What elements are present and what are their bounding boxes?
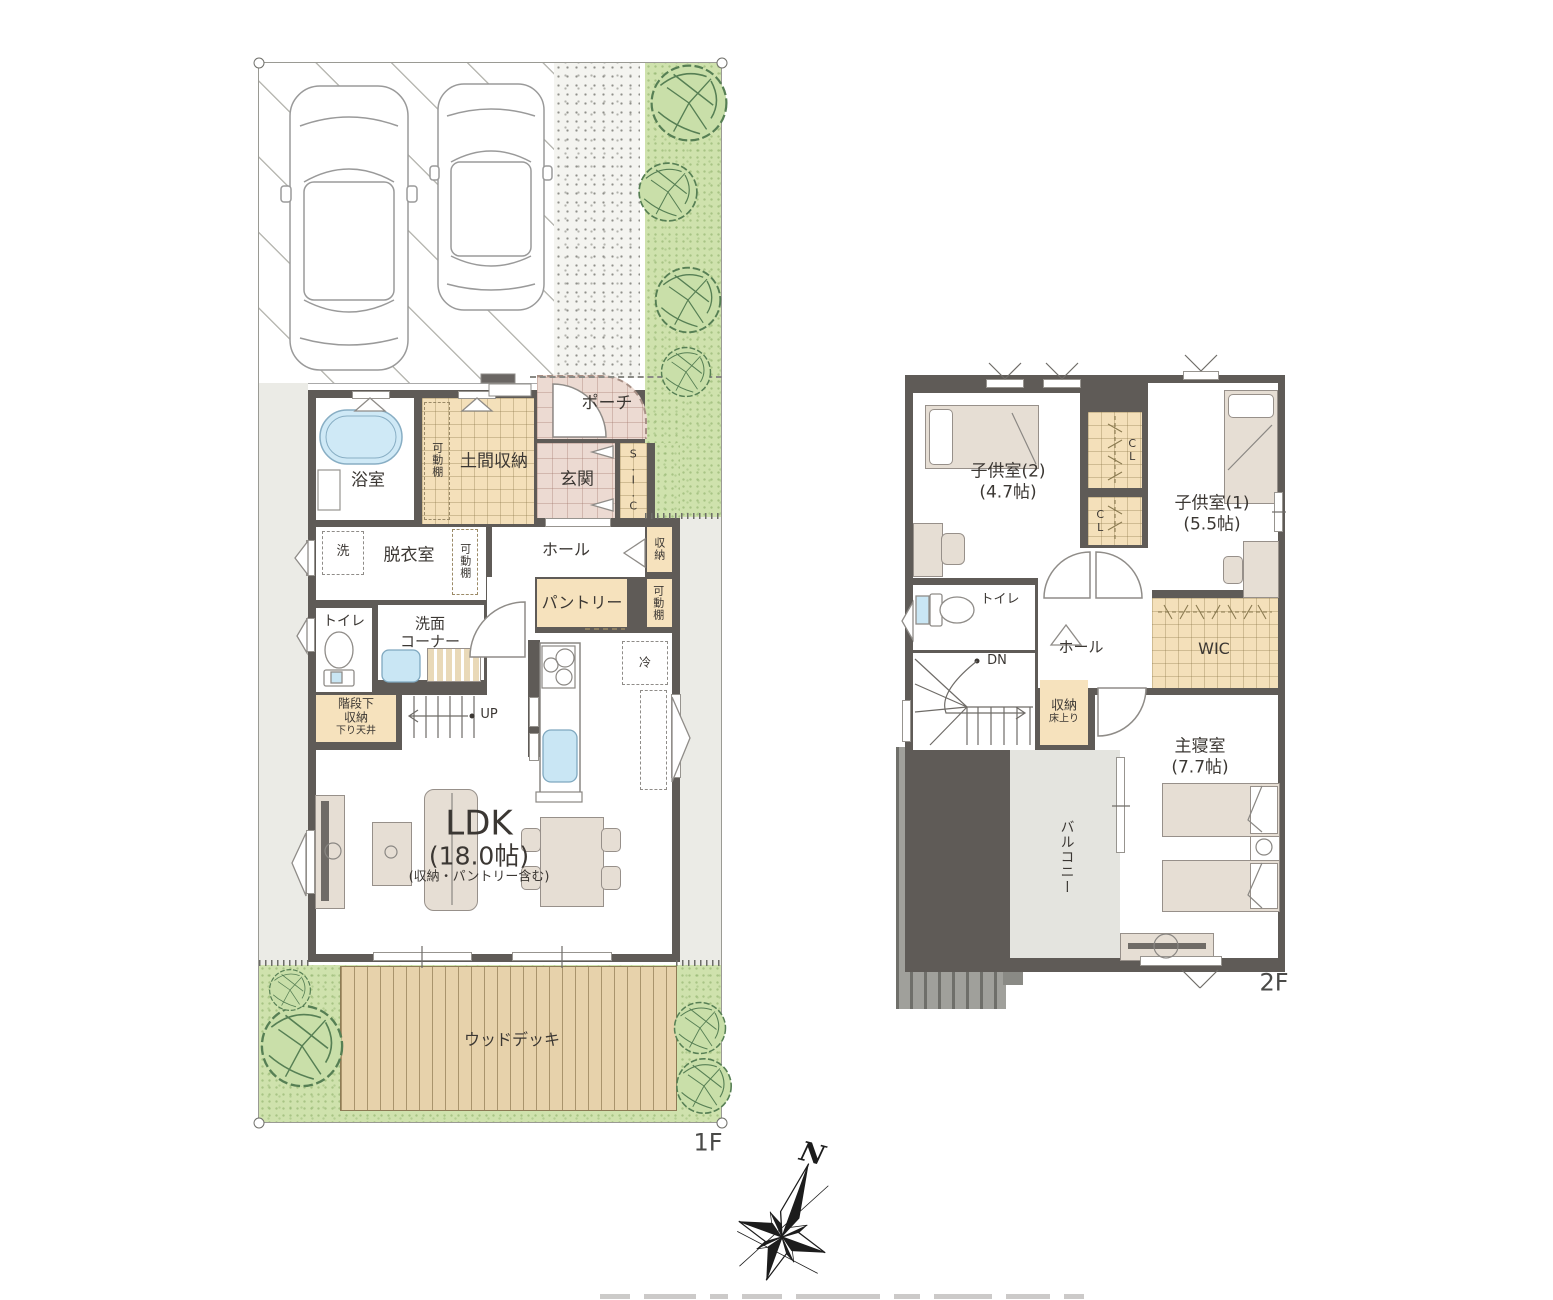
label-ldk-note: (収納・パントリー含む) [409, 870, 550, 884]
label-balcony: バルコニー [1057, 820, 1074, 895]
plan-vector-overlay [0, 0, 1553, 1300]
cropped-caption-remnant [600, 1294, 1084, 1299]
label-under-stair-storage: 階段下 収納 下り天井 [336, 697, 376, 736]
dining-chair [601, 866, 621, 890]
site-corner-marker [717, 1118, 728, 1129]
label-child2: 子供室(2) (4.7帖) [970, 461, 1045, 502]
window [1140, 956, 1222, 966]
label-washer: 洗 [336, 544, 349, 560]
room-bathroom [316, 398, 414, 520]
compass-rose-icon [723, 1148, 852, 1296]
label-hall-2f: ホール [1058, 638, 1103, 656]
label-master-name: 主寝室 [1171, 736, 1228, 757]
window [529, 697, 539, 727]
label-toilet-2f: トイレ [980, 592, 1019, 608]
label-dn: DN [987, 653, 1007, 669]
window-sliding [512, 952, 612, 961]
label-storage2f-note: 床上り [1049, 714, 1079, 725]
dining-chair [601, 828, 621, 852]
window [529, 733, 539, 761]
label-pantry: パントリー [542, 593, 623, 613]
label-child1-size: (5.5帖) [1174, 514, 1249, 535]
label-1f: 1F [693, 1128, 722, 1157]
lawn-notch [645, 390, 680, 443]
label-uss-1: 階段下 [336, 697, 376, 711]
fence-east [645, 513, 722, 519]
chair [941, 533, 965, 565]
desk [913, 523, 943, 577]
fence-southwest [259, 960, 311, 966]
genkan-step [545, 518, 611, 527]
window [1274, 492, 1283, 532]
site-corner-marker [254, 58, 265, 69]
label-master-size: (7.7帖) [1171, 757, 1228, 778]
dining-table [540, 817, 604, 907]
window [306, 540, 315, 576]
nightstand [1250, 836, 1280, 861]
cupboard-space [640, 690, 667, 790]
window [306, 618, 315, 652]
label-senmen-line2: コーナー [400, 633, 460, 651]
label-fridge: 冷 [639, 656, 651, 671]
label-sic: S.I.C [626, 448, 639, 513]
window [671, 694, 681, 778]
tv-board [315, 795, 345, 909]
label-hall-1f: ホール [542, 540, 590, 560]
label-child2-size: (4.7帖) [970, 482, 1045, 503]
label-movable-shelf: 可動棚 [458, 543, 471, 579]
label-ldk: LDK (18.0帖) (収納・パントリー含む) [409, 805, 550, 884]
label-child1: 子供室(1) (5.5帖) [1174, 493, 1249, 534]
window [352, 391, 390, 399]
window-sliding [373, 952, 472, 961]
stairs-1f [402, 695, 487, 740]
pillow [1228, 394, 1274, 418]
label-storage-1f: 収納 [652, 537, 665, 561]
window [458, 391, 496, 399]
balcony-door [1116, 757, 1125, 853]
desk [1243, 541, 1279, 598]
floor-plan-canvas: 浴室 可動棚 土間収納 ポーチ 玄関 S.I.C 洗 脱衣室 可動棚 ホール 収… [0, 0, 1553, 1300]
window [1043, 379, 1081, 388]
room-hall-2f [1038, 548, 1152, 688]
label-movable-shelf: 可動棚 [651, 585, 664, 621]
lawn-notch [655, 443, 680, 518]
label-wood-deck: ウッドデッキ [464, 1030, 560, 1050]
label-porch: ポーチ [582, 394, 633, 415]
label-uss-3: 下り天井 [336, 725, 376, 737]
senmen-counter [427, 648, 481, 682]
label-2f: 2F [1259, 968, 1288, 997]
fence-southeast [676, 960, 722, 966]
window [306, 830, 315, 894]
label-toilet-1f: トイレ [323, 613, 365, 630]
label-ldk-size: (18.0帖) [409, 843, 550, 871]
dashed-boundary-line [530, 376, 722, 378]
chair [1223, 556, 1243, 584]
label-up: UP [480, 707, 497, 723]
label-genkan: 玄関 [560, 470, 594, 491]
pillow [929, 409, 953, 465]
pillow [1250, 863, 1278, 909]
label-senmen-line1: 洗面 [400, 615, 460, 633]
coffee-table [372, 822, 412, 886]
pillow [1250, 786, 1278, 834]
site-corner-marker [254, 1118, 265, 1129]
label-datsui: 脱衣室 [384, 546, 435, 567]
stairs-2f [913, 653, 1035, 750]
label-bathroom: 浴室 [351, 471, 385, 492]
label-cl-bottom: CL [1093, 508, 1106, 534]
label-child1-name: 子供室(1) [1174, 493, 1249, 514]
label-north: N [796, 1136, 828, 1174]
site-corner-marker [717, 58, 728, 69]
label-doma-storage: 土間収納 [460, 452, 528, 473]
label-child2-name: 子供室(2) [970, 461, 1045, 482]
label-uss-2: 収納 [336, 711, 376, 725]
window [986, 379, 1024, 388]
label-wic: WIC [1198, 639, 1230, 659]
window [902, 700, 911, 742]
label-senmen: 洗面 コーナー [400, 615, 460, 652]
label-cl-top: CL [1125, 437, 1138, 463]
window [1183, 371, 1219, 380]
label-master: 主寝室 (7.7帖) [1171, 736, 1228, 777]
label-movable-shelf: 可動棚 [430, 442, 443, 478]
label-storage-2f: 収納 床上り [1049, 699, 1079, 724]
label-storage2f-name: 収納 [1049, 699, 1079, 713]
label-ldk-name: LDK [409, 805, 550, 842]
